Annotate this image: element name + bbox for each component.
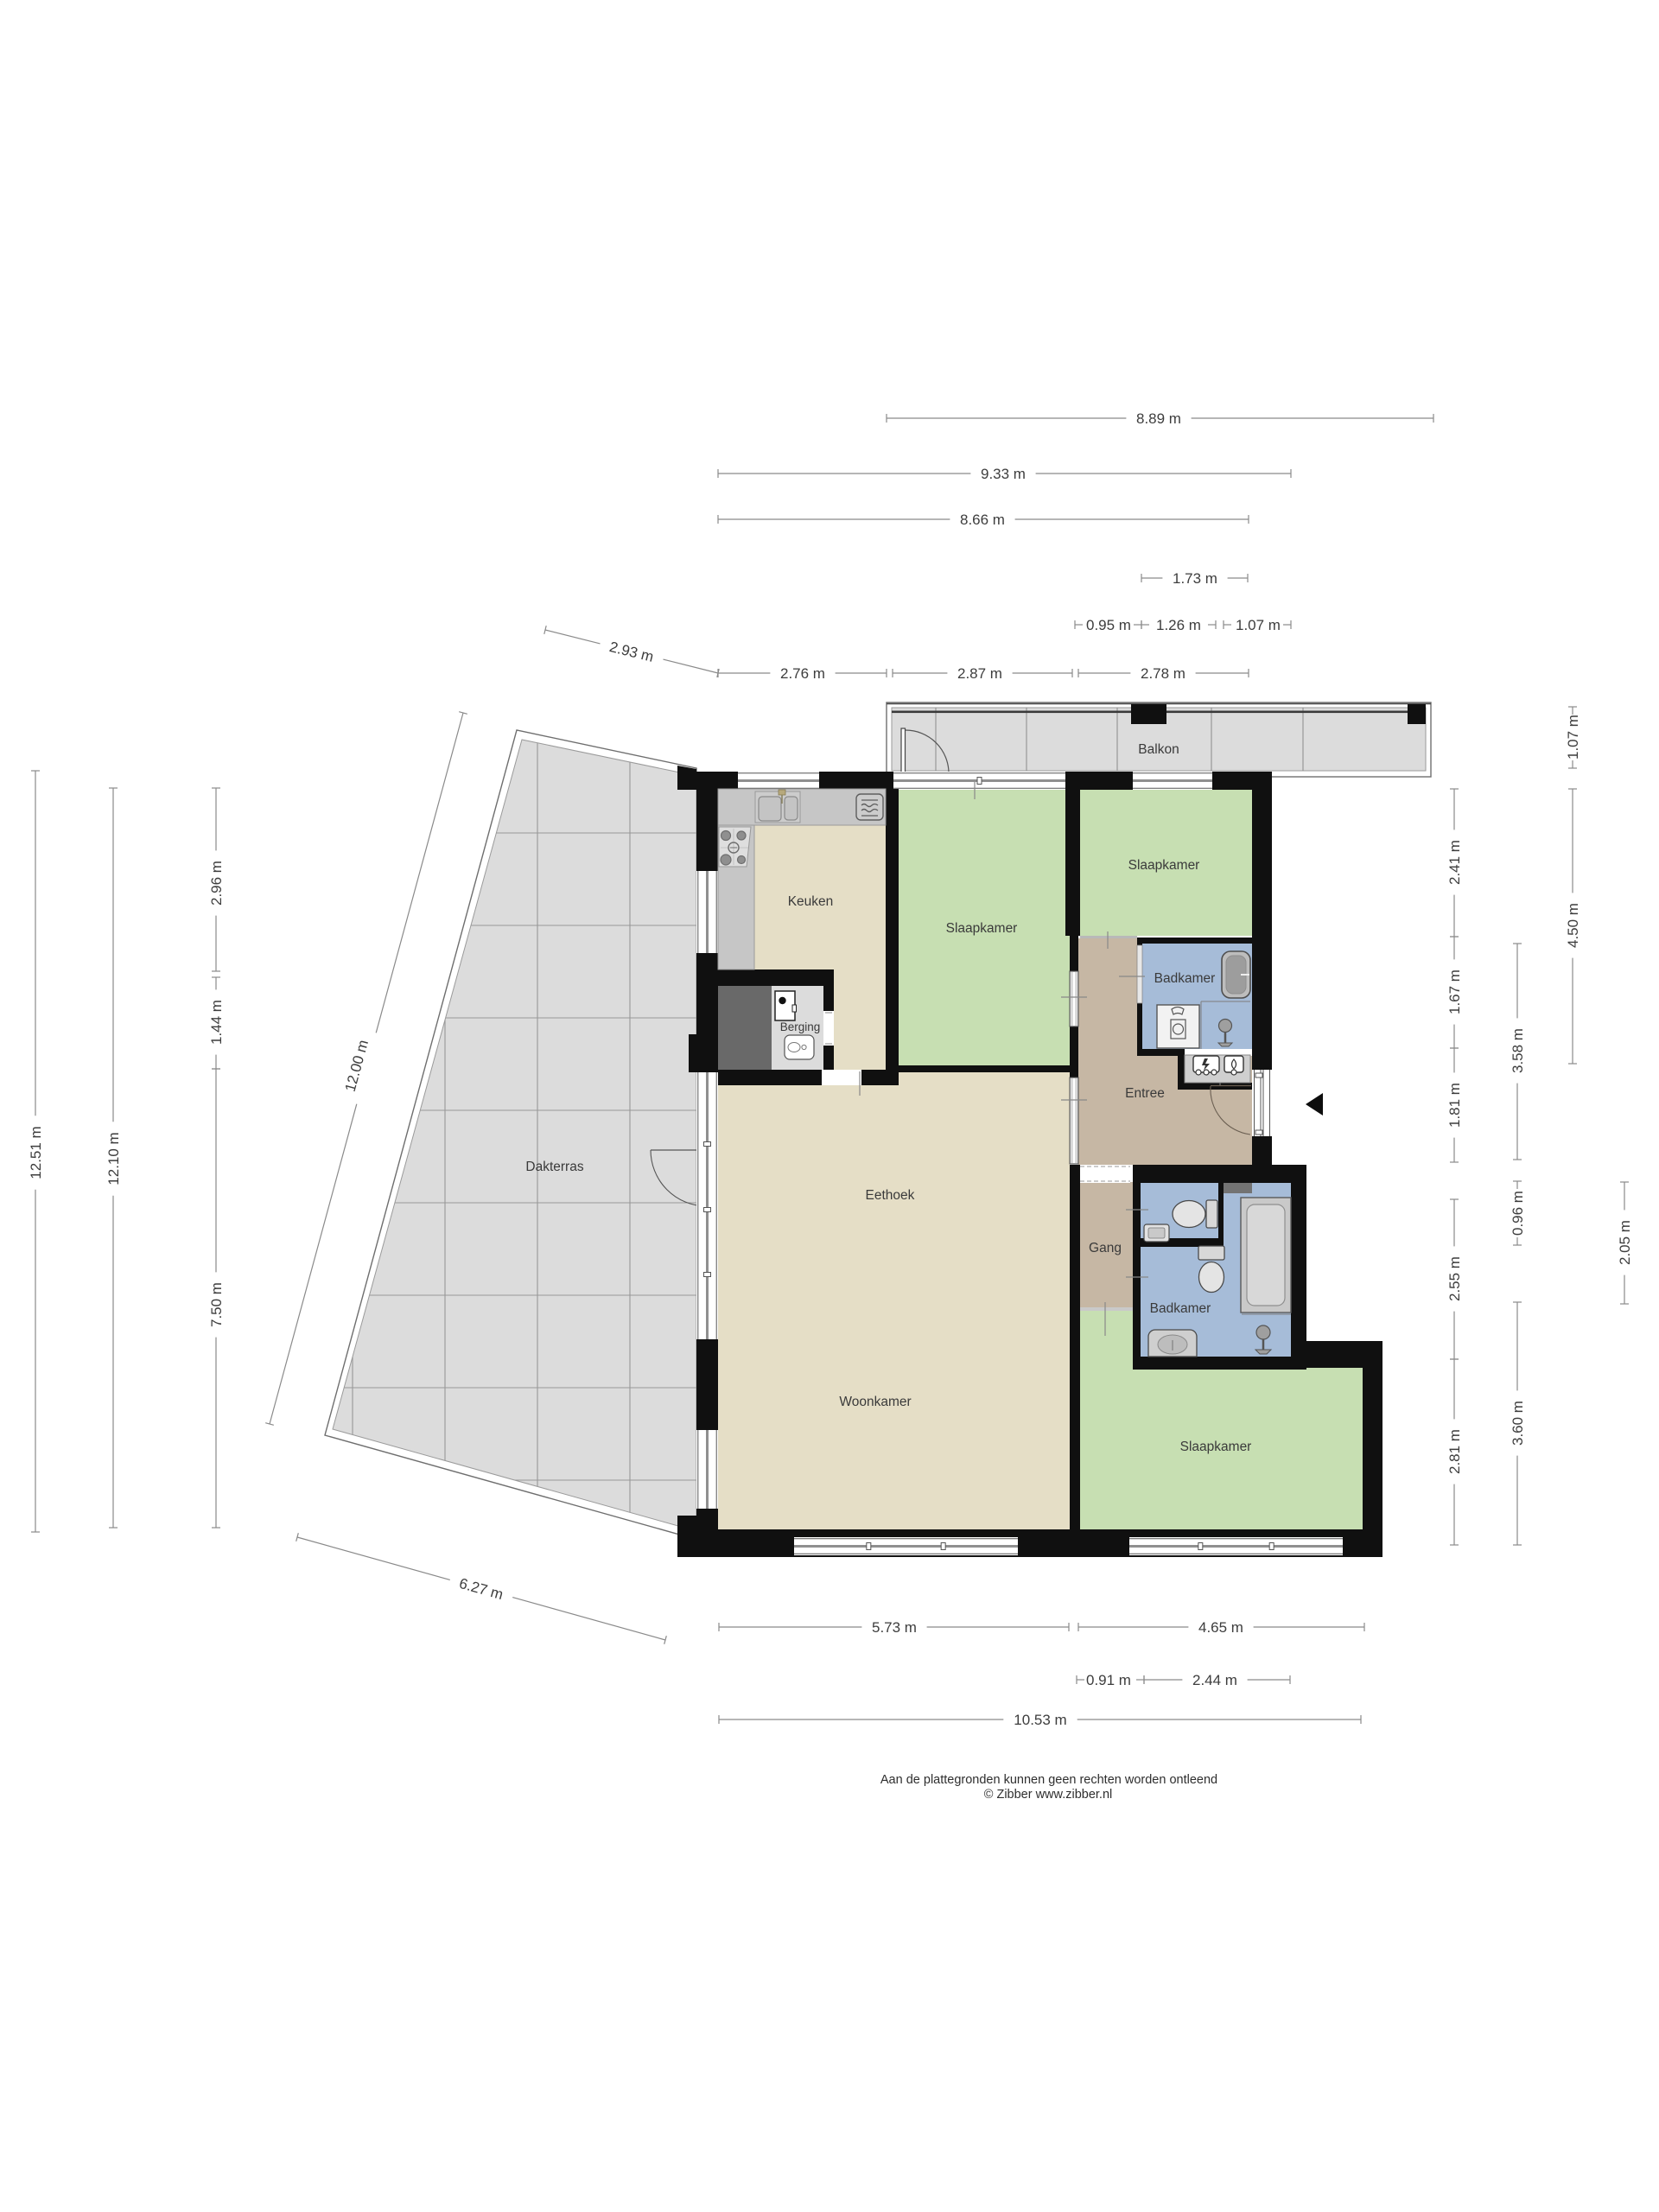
svg-text:2.76 m: 2.76 m — [780, 665, 825, 682]
svg-text:10.53 m: 10.53 m — [1014, 1712, 1066, 1728]
svg-text:1.07 m: 1.07 m — [1236, 617, 1281, 633]
svg-text:1.44 m: 1.44 m — [208, 1000, 225, 1045]
svg-text:Slaapkamer: Slaapkamer — [1128, 858, 1200, 873]
svg-text:2.81 m: 2.81 m — [1446, 1429, 1463, 1474]
svg-text:2.41 m: 2.41 m — [1446, 840, 1463, 885]
svg-text:12.10 m: 12.10 m — [105, 1132, 122, 1185]
svg-text:0.96 m: 0.96 m — [1510, 1191, 1526, 1236]
svg-text:2.05 m: 2.05 m — [1617, 1220, 1633, 1265]
svg-text:3.58 m: 3.58 m — [1510, 1028, 1526, 1073]
svg-text:1.81 m: 1.81 m — [1446, 1083, 1463, 1128]
svg-text:0.91 m: 0.91 m — [1086, 1672, 1131, 1688]
svg-text:© Zibber www.zibber.nl: © Zibber www.zibber.nl — [984, 1788, 1113, 1802]
svg-text:8.66 m: 8.66 m — [960, 512, 1005, 528]
svg-text:4.65 m: 4.65 m — [1198, 1619, 1243, 1636]
svg-text:Woonkamer: Woonkamer — [839, 1395, 911, 1409]
svg-text:Aan de plattegronden kunnen ge: Aan de plattegronden kunnen geen rechten… — [880, 1773, 1217, 1787]
svg-text:2.87 m: 2.87 m — [957, 665, 1002, 682]
svg-text:2.55 m: 2.55 m — [1446, 1256, 1463, 1301]
svg-text:Slaapkamer: Slaapkamer — [946, 921, 1018, 936]
svg-text:1.07 m: 1.07 m — [1565, 715, 1581, 760]
svg-text:5.73 m: 5.73 m — [872, 1619, 917, 1636]
svg-text:9.33 m: 9.33 m — [981, 466, 1026, 482]
svg-text:Entree: Entree — [1125, 1086, 1165, 1101]
svg-text:12.51 m: 12.51 m — [28, 1126, 44, 1179]
svg-text:1.73 m: 1.73 m — [1173, 570, 1217, 587]
svg-text:Keuken: Keuken — [788, 894, 834, 909]
svg-text:Badkamer: Badkamer — [1154, 971, 1216, 986]
svg-text:1.26 m: 1.26 m — [1156, 617, 1201, 633]
svg-text:3.60 m: 3.60 m — [1510, 1401, 1526, 1446]
svg-text:Eethoek: Eethoek — [866, 1188, 915, 1203]
svg-text:4.50 m: 4.50 m — [1565, 903, 1581, 948]
svg-text:1.67 m: 1.67 m — [1446, 969, 1463, 1014]
svg-text:2.78 m: 2.78 m — [1141, 665, 1185, 682]
svg-text:0.95 m: 0.95 m — [1086, 617, 1131, 633]
svg-text:Slaapkamer: Slaapkamer — [1180, 1440, 1252, 1454]
svg-text:Gang: Gang — [1089, 1241, 1122, 1255]
svg-text:Berging: Berging — [780, 1020, 821, 1033]
svg-text:Badkamer: Badkamer — [1150, 1301, 1211, 1316]
svg-text:8.89 m: 8.89 m — [1136, 410, 1181, 427]
svg-text:7.50 m: 7.50 m — [208, 1282, 225, 1327]
svg-text:Balkon: Balkon — [1138, 742, 1179, 757]
svg-text:2.96 m: 2.96 m — [208, 861, 225, 906]
svg-text:Dakterras: Dakterras — [525, 1160, 583, 1174]
svg-text:2.44 m: 2.44 m — [1192, 1672, 1237, 1688]
